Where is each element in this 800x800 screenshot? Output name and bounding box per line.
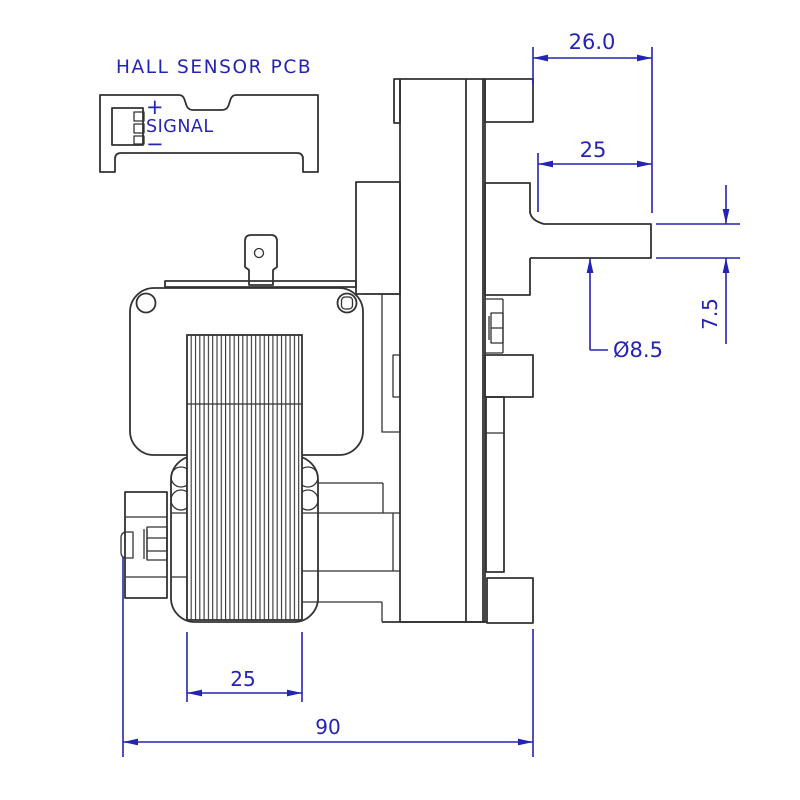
spade-terminal — [245, 235, 277, 285]
lamination-stack — [187, 335, 302, 620]
dimension-26: 26.0 — [533, 30, 652, 213]
motor-assembly — [121, 182, 400, 622]
left-bracket-lines — [125, 517, 167, 577]
top-mounting-ear — [485, 79, 533, 122]
gearbox-inner-lines — [466, 79, 483, 622]
bottom-mounting-ear — [487, 578, 533, 623]
pcb-connector — [112, 108, 143, 145]
dim-26-label: 26.0 — [569, 30, 616, 54]
middle-bracket — [382, 294, 400, 432]
technical-drawing-page: HALL SENSOR PCB + SIGNAL − — [0, 0, 800, 800]
left-bracket — [125, 492, 167, 598]
dim-90-label: 90 — [315, 715, 340, 739]
frame-screw-slot — [342, 297, 353, 309]
dimension-7-5: 7.5 — [656, 185, 740, 344]
output-shaft — [530, 212, 651, 258]
dimension-90: 90 — [123, 557, 533, 757]
output-boss — [485, 183, 530, 295]
dimension-25-stack: 25 — [187, 632, 302, 702]
dim-diameter-label: Ø8.5 — [613, 338, 663, 362]
pcb-plus-label: + — [146, 95, 164, 119]
gearbox-plate — [400, 79, 485, 622]
side-rib — [486, 397, 504, 572]
dim-7-5-label: 7.5 — [698, 298, 722, 330]
gearbox-housing — [382, 79, 651, 623]
mid-mounting-ear — [485, 355, 533, 397]
bolt-hex-head — [147, 527, 167, 560]
pcb-title: HALL SENSOR PCB — [116, 57, 312, 78]
pcb-minus-label: − — [146, 132, 164, 156]
gear-motor-drawing: HALL SENSOR PCB + SIGNAL − — [0, 0, 800, 800]
bearing-boss — [356, 182, 400, 294]
frame-screw-hole-left — [137, 294, 156, 313]
terminal-hole — [255, 249, 264, 258]
pcb-drawing: HALL SENSOR PCB + SIGNAL − — [100, 57, 318, 172]
side-screw-block — [485, 299, 503, 353]
bolt-stud — [121, 532, 133, 558]
dimension-diameter: Ø8.5 — [587, 258, 663, 362]
stack-top-strip — [165, 281, 356, 287]
dim-25-stack-label: 25 — [230, 667, 255, 691]
gearbox-left-step — [394, 79, 400, 123]
bolt-hex-flats — [147, 538, 167, 551]
dimension-25-shaft: 25 — [538, 138, 652, 212]
middle-tab — [393, 355, 400, 397]
dim-25-shaft-label: 25 — [580, 138, 607, 162]
